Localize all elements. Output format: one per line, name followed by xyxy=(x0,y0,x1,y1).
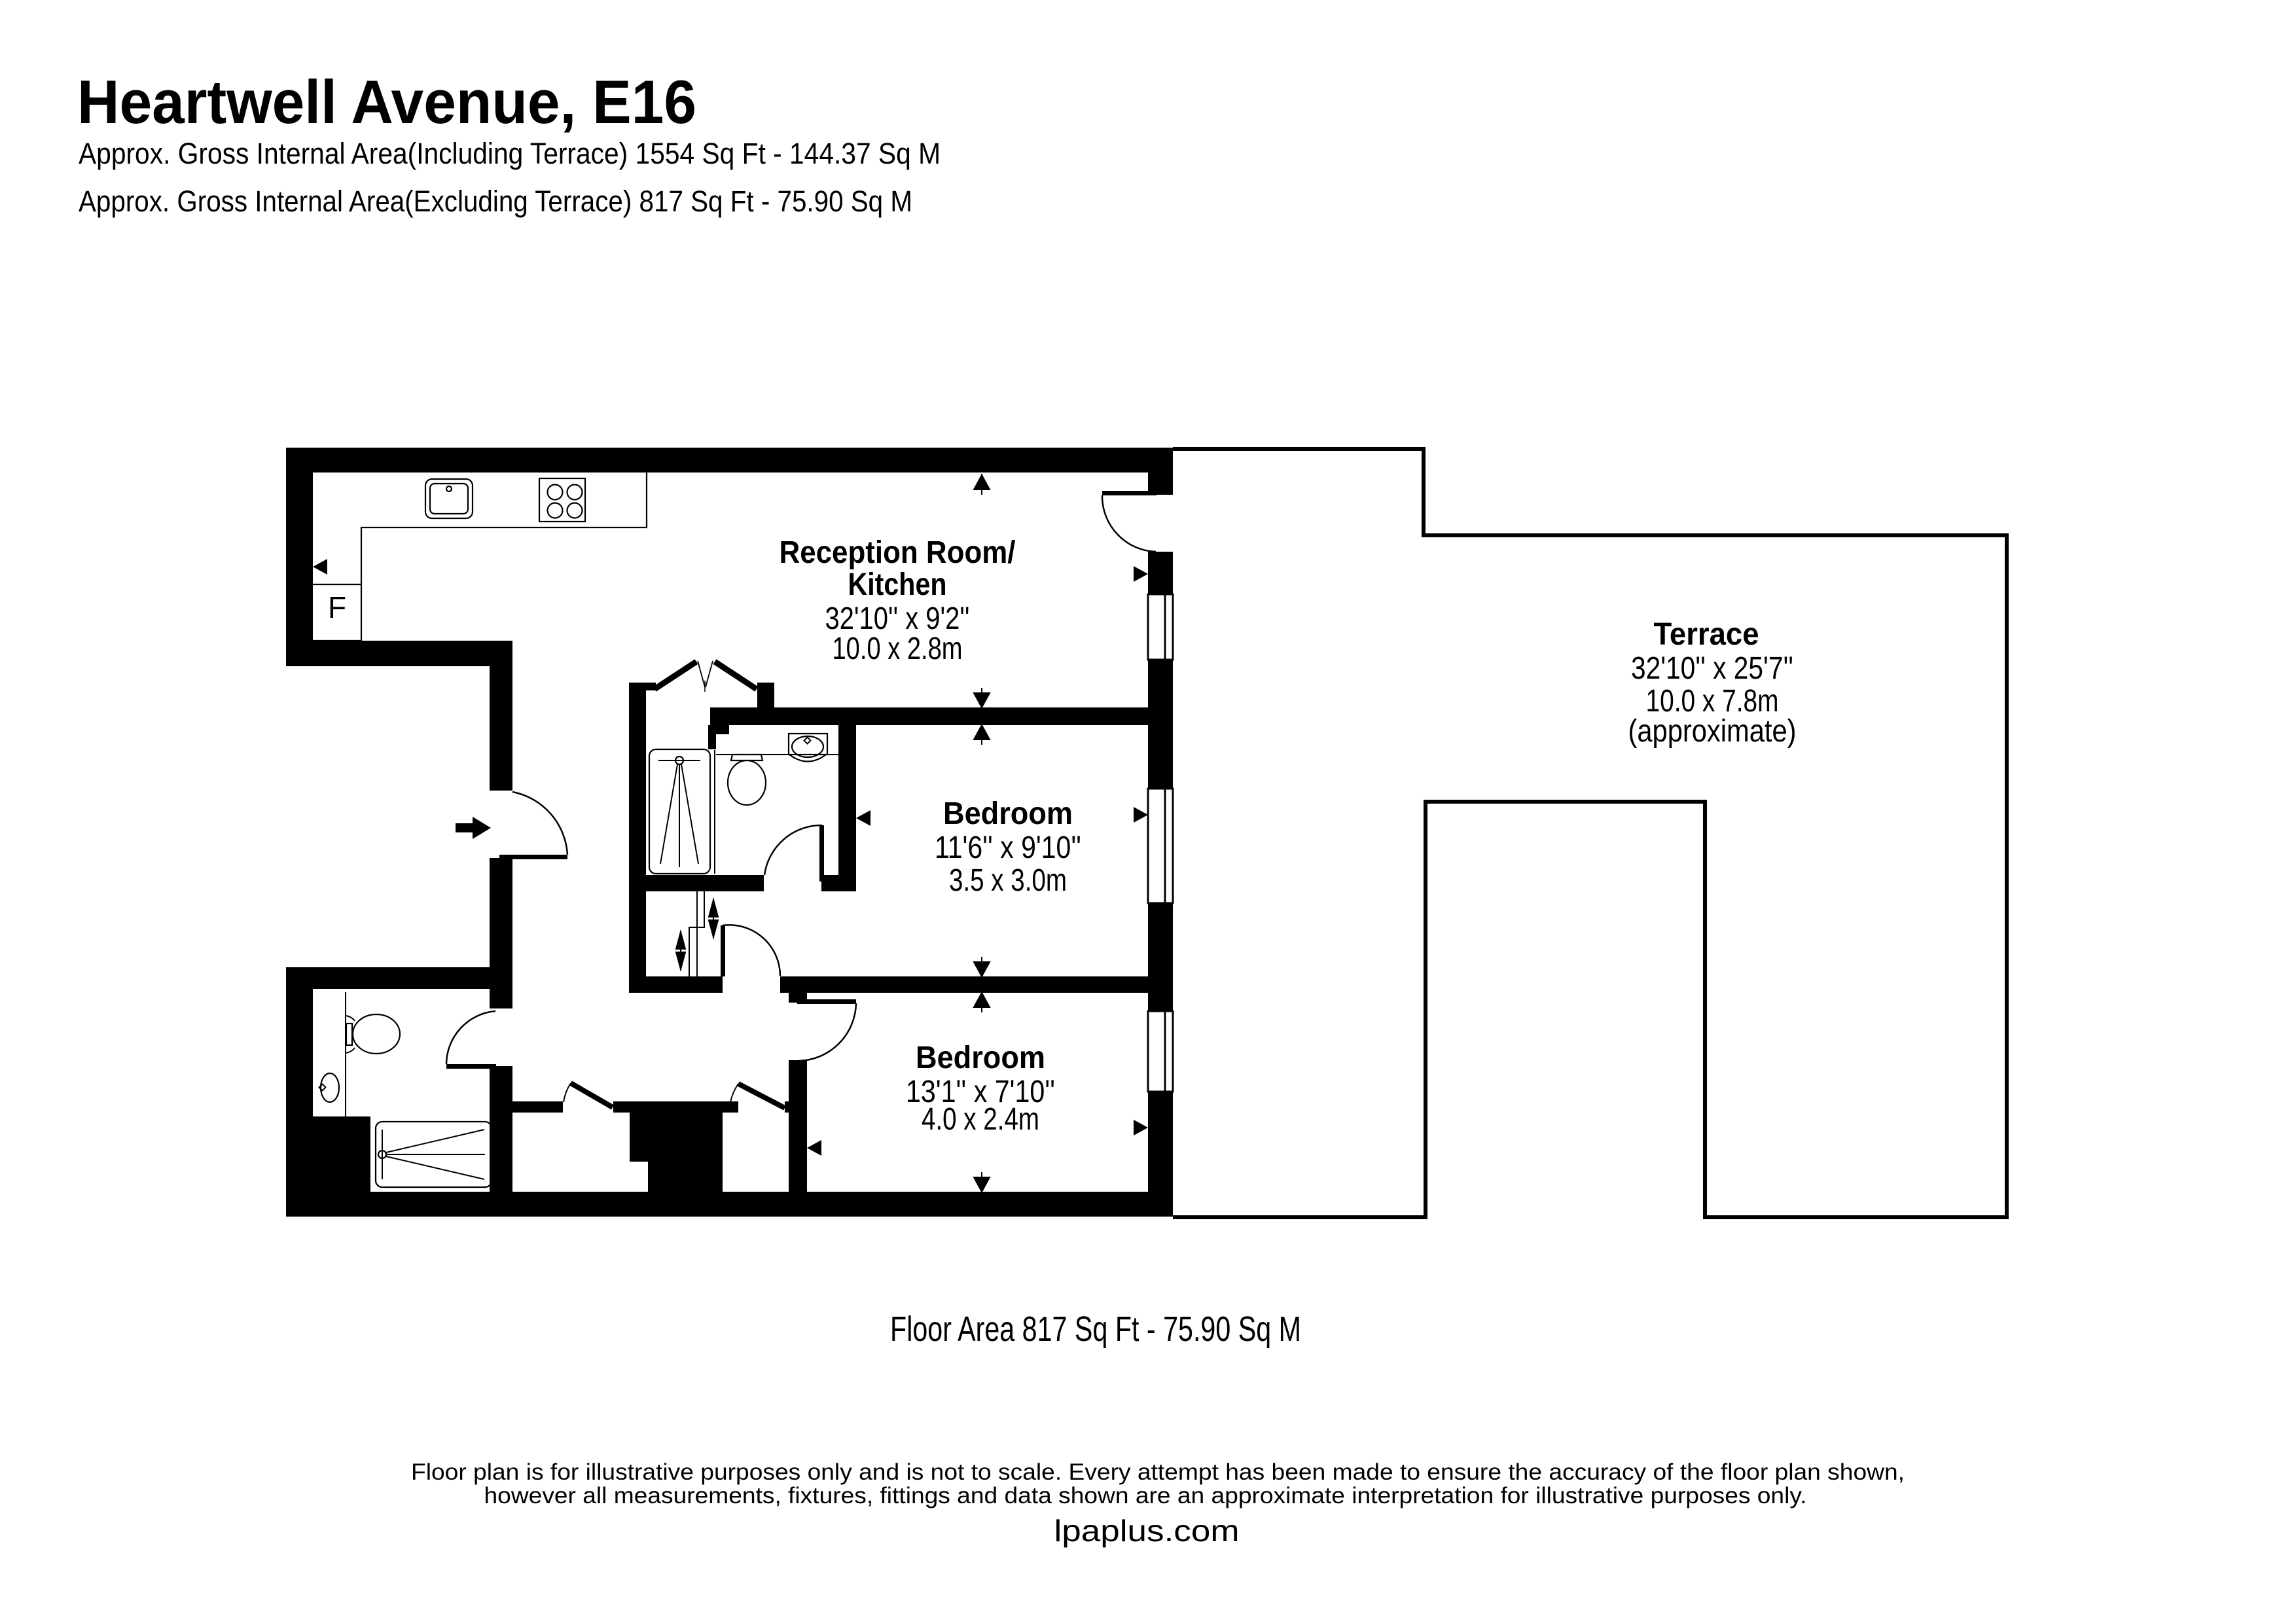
svg-text:32'10'' x 25'7'': 32'10'' x 25'7'' xyxy=(1631,651,1793,686)
svg-text:lpaplus.com: lpaplus.com xyxy=(1054,1514,1240,1548)
svg-text:Bedroom: Bedroom xyxy=(943,796,1073,831)
svg-text:(approximate): (approximate) xyxy=(1628,714,1797,749)
svg-text:Reception Room/: Reception Room/ xyxy=(780,535,1016,570)
svg-text:F: F xyxy=(328,590,346,624)
svg-text:Kitchen: Kitchen xyxy=(848,567,947,602)
svg-text:however all measurements, fixt: however all measurements, fixtures, fitt… xyxy=(484,1483,1807,1508)
svg-text:Floor plan is for illustrative: Floor plan is for illustrative purposes … xyxy=(411,1459,1905,1485)
svg-text:11'6'' x 9'10'': 11'6'' x 9'10'' xyxy=(935,830,1081,865)
svg-text:Approx. Gross Internal Area(In: Approx. Gross Internal Area(Including Te… xyxy=(79,137,941,170)
svg-text:4.0 x 2.4m: 4.0 x 2.4m xyxy=(922,1102,1039,1137)
svg-text:Heartwell Avenue, E16: Heartwell Avenue, E16 xyxy=(77,67,696,136)
svg-text:Floor Area 817 Sq Ft - 75.90 S: Floor Area 817 Sq Ft - 75.90 Sq M xyxy=(890,1310,1301,1349)
svg-text:Terrace: Terrace xyxy=(1654,617,1759,652)
svg-text:3.5 x 3.0m: 3.5 x 3.0m xyxy=(949,863,1067,898)
svg-text:10.0 x 2.8m: 10.0 x 2.8m xyxy=(833,632,963,666)
svg-text:Approx. Gross Internal Area(Ex: Approx. Gross Internal Area(Excluding Te… xyxy=(79,185,912,218)
svg-text:Bedroom: Bedroom xyxy=(916,1041,1045,1075)
